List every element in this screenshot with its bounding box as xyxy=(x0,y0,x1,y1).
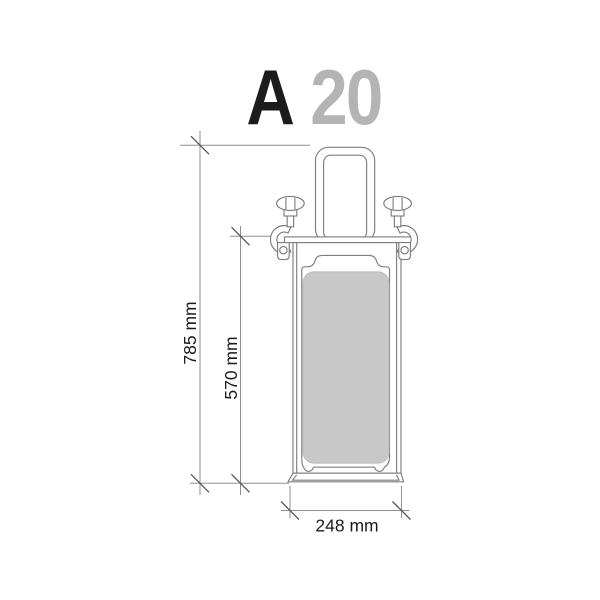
product-model-number: 20 xyxy=(310,55,381,142)
crossbar xyxy=(285,237,418,243)
sign-body xyxy=(288,243,404,482)
clamp-screw-rod xyxy=(394,216,400,227)
width-label: 248 mm xyxy=(315,516,378,536)
clamp-hole-icon xyxy=(401,247,408,254)
clamp-knob xyxy=(277,196,305,210)
clamp-screw-rod xyxy=(287,216,293,227)
technical-drawing-page: A 20 785 mm 570 mm 248 xyxy=(0,0,600,600)
product-technical-drawing: A 20 785 mm 570 mm 248 xyxy=(0,0,600,600)
product-front-view xyxy=(270,147,417,482)
sign-panel xyxy=(303,272,389,463)
overall-height-label: 785 mm xyxy=(180,301,200,364)
product-series-letter: A xyxy=(246,55,293,142)
page-title: A 20 xyxy=(246,55,381,142)
visible-height-label: 570 mm xyxy=(221,336,241,399)
handle-loop-inner xyxy=(324,155,367,239)
clamp-hole-icon xyxy=(280,247,287,254)
clamp-knob xyxy=(384,196,412,210)
handle-loop xyxy=(316,147,375,242)
